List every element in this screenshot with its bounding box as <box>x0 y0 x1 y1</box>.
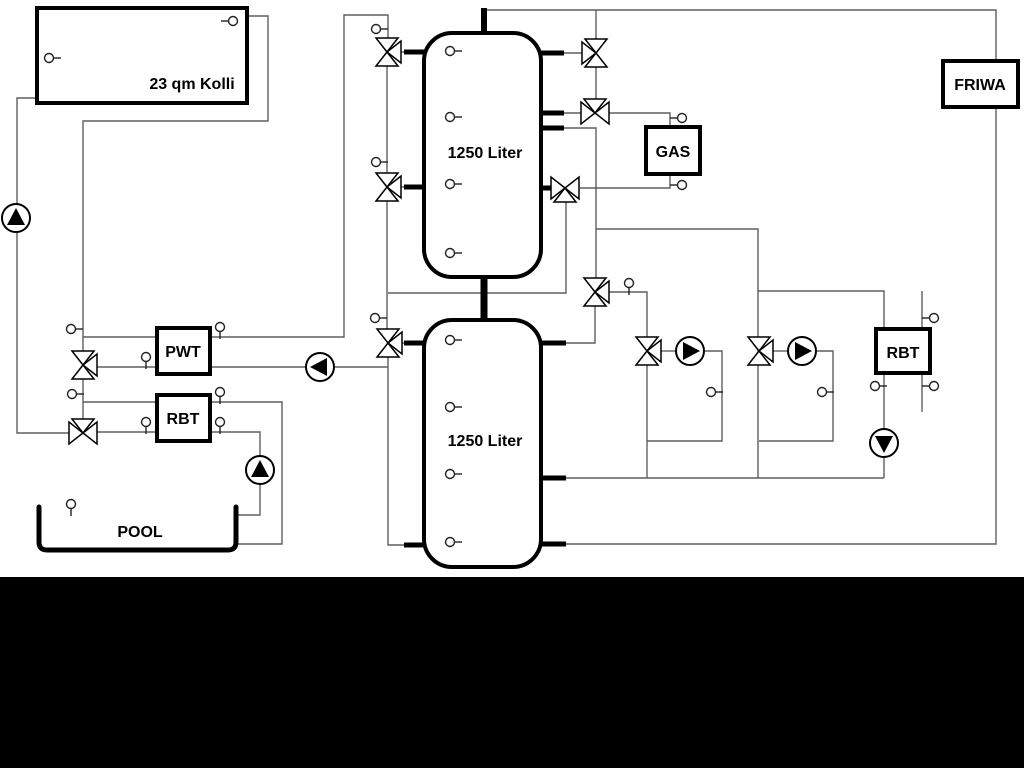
pool-label: POOL <box>117 524 163 541</box>
sensor-distribution-bulb-icon <box>625 279 634 288</box>
sensor-rbt-right-bulb-icon <box>871 382 880 391</box>
pwt-exchanger-label: PWT <box>165 344 201 361</box>
sensor-collector-top-bulb-icon <box>229 17 238 26</box>
sensor-line83-upper-bulb-icon <box>67 325 76 334</box>
pump-pwt <box>306 353 334 381</box>
sensor-pwt-bottom-bulb-icon <box>142 353 151 362</box>
sensor-tank1-2-bulb-icon <box>446 113 455 122</box>
sensor-tank1-3-bulb-icon <box>446 180 455 189</box>
buffer-tank-1-label: 1250 Liter <box>448 145 523 162</box>
gas-boiler-label: GAS <box>656 144 691 161</box>
hydraulic-schematic: 1250 Liter1250 Liter23 qm KolliGASFRIWAP… <box>0 0 1024 768</box>
sensor-tank1-4-bulb-icon <box>446 249 455 258</box>
sensor-collector-left-bulb-icon <box>45 54 54 63</box>
pump-solar <box>2 204 30 232</box>
sensor-valve3-bulb-icon <box>371 314 380 323</box>
bottom-black-bar <box>0 577 1024 768</box>
sensor-tank2-1-bulb-icon <box>446 336 455 345</box>
rbt-right-label: RBT <box>887 345 920 362</box>
solar-collector-label: 23 qm Kolli <box>149 76 234 93</box>
sensor-rbt-top-bulb-icon <box>216 388 225 397</box>
sensor-valve1-bulb-icon <box>372 25 381 34</box>
sensor-tank2-4-bulb-icon <box>446 538 455 547</box>
friwa-station-label: FRIWA <box>954 77 1006 94</box>
sensor-gas-supply-bulb-icon <box>678 114 687 123</box>
sensor-tank2-3-bulb-icon <box>446 470 455 479</box>
sensor-rbt-bottom-left-bulb-icon <box>142 418 151 427</box>
sensor-tank1-1-bulb-icon <box>446 47 455 56</box>
sensor-pwt-top-bulb-icon <box>216 323 225 332</box>
sensor-valve2-bulb-icon <box>372 158 381 167</box>
pump-heating-1 <box>676 337 704 365</box>
sensor-heating-1-bulb-icon <box>707 388 716 397</box>
buffer-tank-2-label: 1250 Liter <box>448 433 523 450</box>
pump-rbt-right <box>870 429 898 457</box>
pump-pool <box>246 456 274 484</box>
rbt-left-label: RBT <box>167 411 200 428</box>
sensor-rbt-aux-top-bulb-icon <box>930 314 939 323</box>
sensor-heating-2-bulb-icon <box>818 388 827 397</box>
sensor-pool-bulb-icon <box>67 500 76 509</box>
sensor-rbt-bottom-right-bulb-icon <box>216 418 225 427</box>
sensor-rbt-aux-bottom-bulb-icon <box>930 382 939 391</box>
sensor-tank2-2-bulb-icon <box>446 403 455 412</box>
sensor-line83-lower-bulb-icon <box>68 390 77 399</box>
pump-heating-2 <box>788 337 816 365</box>
hydraulic-schematic-page: 1250 Liter1250 Liter23 qm KolliGASFRIWAP… <box>0 0 1024 768</box>
sensor-gas-return-bulb-icon <box>678 181 687 190</box>
